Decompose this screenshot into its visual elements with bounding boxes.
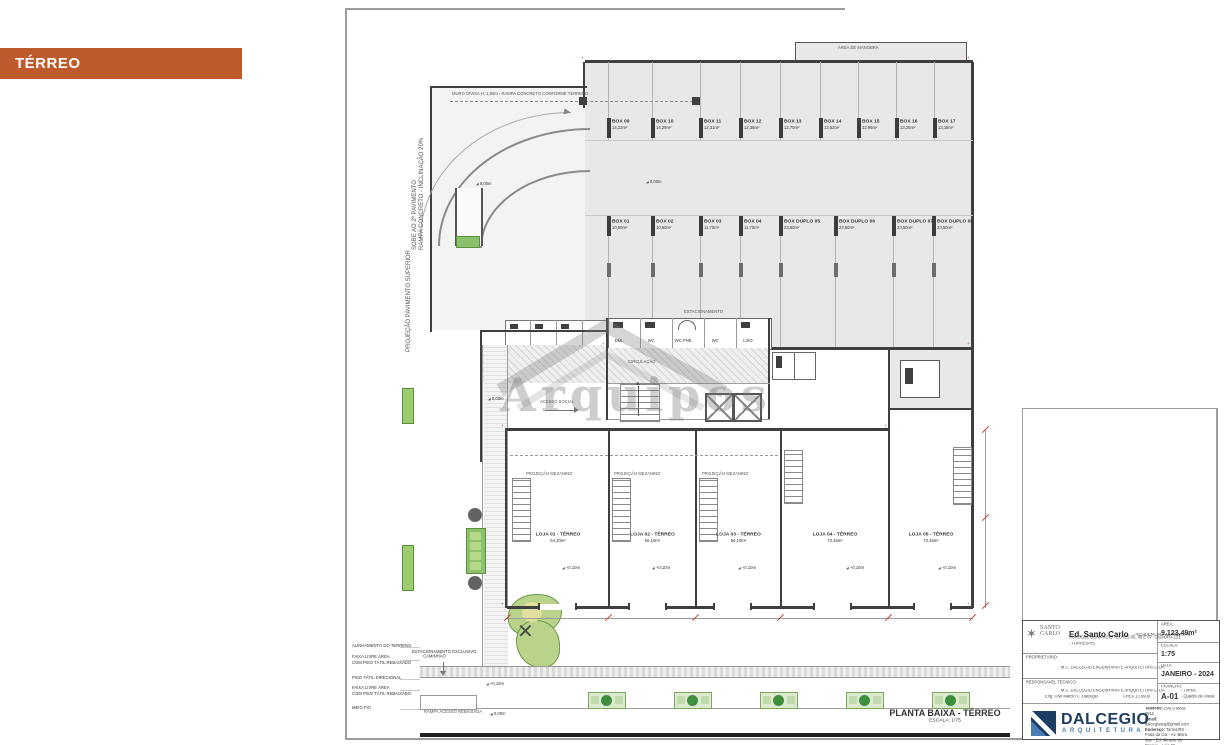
- watermark-text: Arquipos: [500, 368, 772, 422]
- street-planter: [674, 692, 712, 709]
- s7: 10,50m²: [656, 226, 671, 231]
- mezz-dashed: [510, 455, 778, 456]
- shape: [591, 696, 599, 704]
- ramp-rebaixada: [420, 695, 477, 710]
- escala-value: 1:75: [1161, 651, 1175, 658]
- box-stall: BOX DUPLO 0723,50m²: [893, 216, 934, 347]
- blab: BOX 1014,29m²: [656, 119, 678, 133]
- b: BOX DUPLO 08: [937, 219, 973, 225]
- s7: 12,70m²: [784, 126, 799, 131]
- jamb: [750, 603, 752, 610]
- blab: BOX DUPLO 0523,50m²: [784, 219, 828, 233]
- fixture: [905, 368, 913, 384]
- b: Telefone:: [1145, 707, 1163, 711]
- arrow-head: [440, 671, 446, 676]
- loja-stair: [784, 450, 803, 504]
- prancha-label: PRANCHA:: [1161, 685, 1182, 689]
- a: [470, 532, 481, 540]
- tblab: Telefone: (54) 9 9999-9912 Email: dalceg…: [1145, 707, 1194, 745]
- jamb: [575, 603, 577, 610]
- shape: [935, 696, 943, 704]
- legend-item: MEIO FIO: [352, 706, 371, 711]
- s7: 73,45m²: [799, 539, 872, 544]
- street-planter: [760, 692, 798, 709]
- street-planter: [588, 692, 626, 709]
- legend-item: COM PISO TÁTIL REBAIXADO: [352, 661, 411, 666]
- b: Email:: [1145, 718, 1157, 722]
- owner-label: PROPRIETÁRIO:: [1026, 656, 1058, 660]
- jamb: [538, 603, 540, 610]
- shape: ✶: [1026, 626, 1037, 641]
- shape: [959, 696, 967, 704]
- s7: 23,50m²: [937, 226, 968, 231]
- b: BOX 01: [612, 219, 630, 225]
- a: [1023, 703, 1219, 704]
- dim-line: [507, 618, 973, 619]
- aisle-line: [585, 140, 973, 141]
- blab: BOX 0110,50m²: [612, 219, 634, 233]
- small-room: [794, 352, 816, 380]
- arrow-head: [563, 108, 571, 115]
- jamb: [628, 603, 630, 610]
- shape: CAMINHÃO: [412, 655, 457, 660]
- drawing-sheet: ÁREA DE MANOBRA MURO DIVISA H: 1,80m - R…: [0, 0, 1224, 745]
- s7: 10,50m²: [612, 226, 627, 231]
- street-planter: [846, 692, 884, 709]
- ramp-planter: [456, 236, 480, 248]
- legend-leader: [400, 679, 420, 680]
- wall: [888, 410, 890, 606]
- wall: [608, 430, 610, 606]
- legend-leader: [400, 690, 420, 691]
- shape: +0,10m: [566, 566, 580, 570]
- frame-left: [345, 8, 347, 739]
- blab: BOX 0411,70m²: [744, 219, 766, 233]
- loja-label: LOJA 01 - TÉRREO54,30m²: [509, 532, 607, 546]
- a: [1157, 662, 1219, 663]
- door-gap: [715, 604, 750, 610]
- shape: [677, 696, 685, 704]
- flagtri: ◢: [738, 566, 741, 570]
- jamb: [813, 603, 815, 610]
- a: [470, 542, 481, 550]
- level-flag: ◢ 0,00m: [490, 712, 506, 717]
- resp-engineer: Eng. Civil Márcio C. Dalcegio: [1045, 695, 1098, 699]
- s7: 23,50m²: [839, 226, 870, 231]
- b: BOX 14: [824, 119, 842, 125]
- wall: [430, 86, 587, 88]
- a: +: [967, 602, 969, 607]
- shape: [601, 695, 612, 706]
- screenshot: TÉRREO ÁREA DE MANOBRA MURO DIVISA H: 1,…: [0, 0, 1224, 745]
- b: LOJA 02 - TÉRREO: [618, 532, 686, 538]
- b: BOX 16: [900, 119, 918, 125]
- b: LOJA 01 - TÉRREO: [518, 532, 598, 538]
- flagtri: ◢: [938, 566, 941, 570]
- shape: [687, 695, 698, 706]
- tree: [468, 508, 482, 522]
- escala-label: ESCALA:: [1161, 644, 1178, 648]
- b: BOX DUPLO 05: [784, 219, 820, 225]
- prancha-value: A-01: [1161, 692, 1178, 701]
- box-stall: BOX 1014,29m²: [652, 62, 701, 140]
- shape: [763, 696, 771, 704]
- jamb: [713, 603, 715, 610]
- box-stall: BOX 0914,22m²: [608, 62, 653, 140]
- b: BOX 10: [656, 119, 674, 125]
- blab: BOX 1613,25m²: [900, 119, 922, 133]
- b: BOX 12: [744, 119, 762, 125]
- box-stall: BOX DUPLO 0623,50m²: [835, 216, 894, 347]
- box-stall: BOX 1212,36m²: [740, 62, 781, 140]
- jamb: [665, 603, 667, 610]
- legend-leader: [400, 709, 420, 710]
- legend-item: FAIXA LIVRE ÁREA: [352, 686, 390, 691]
- jamb: [913, 603, 915, 610]
- fixture: [776, 356, 782, 368]
- street-curb: [420, 733, 1010, 737]
- legend-item: PISO TÁTIL DIRECIONAL: [352, 676, 401, 681]
- caption-scale: ESCALA: 1/75: [890, 718, 1000, 724]
- shape: 0,00m: [480, 182, 492, 186]
- b: BOX 13: [784, 119, 802, 125]
- flagtri: ◢: [652, 566, 655, 570]
- shape: SOBE AO 2º PAVIMENTO: [412, 138, 419, 250]
- shape: +0,10m: [742, 566, 756, 570]
- mezanino-label: PROJEÇÃO MEZANINO: [526, 472, 572, 477]
- box-stall: BOX 1713,18m²: [934, 62, 974, 140]
- loja-label: LOJA 02 - TÉRREO56,10m²: [611, 532, 694, 546]
- s7: 12,96m²: [862, 126, 877, 131]
- shape: [849, 696, 857, 704]
- owner-value: M.C. DALCEGIO ENGENHARIA E ARQUITETURA L…: [1061, 666, 1137, 670]
- door-gap: [815, 604, 850, 610]
- b: LOJA 04 - TÉRREO: [792, 532, 877, 538]
- flagtri: ◢: [846, 566, 849, 570]
- wall: [505, 428, 890, 431]
- a: +: [501, 602, 503, 607]
- jamb: [950, 603, 952, 610]
- shape: [773, 695, 784, 706]
- mezanino-label: PROJEÇÃO MEZANINO: [614, 472, 660, 477]
- b: BOX 17: [938, 119, 956, 125]
- blab: BOX 1312,70m²: [784, 119, 806, 133]
- blab: BOX DUPLO 0623,50m²: [839, 219, 883, 233]
- flagtri: ◢: [562, 566, 565, 570]
- ramp-vertical-label: SOBE AO 2º PAVIMENTORAMPA CONCRETO - INC…: [412, 138, 426, 250]
- santo-carlo-wordmark: SANTOCARLO: [1040, 625, 1060, 638]
- b: BOX DUPLO 07: [897, 219, 933, 225]
- s7: 11,70m²: [744, 226, 759, 231]
- blab: BOX 1212,36m²: [744, 119, 766, 133]
- b: LOJA 05 - TÉRREO: [898, 532, 964, 538]
- shape: dalcegioarq@gmail.com: [1145, 723, 1189, 727]
- s7: 13,25m²: [900, 126, 915, 131]
- level-flag: ◢ +0,10m: [938, 566, 956, 571]
- s7: 11,70m²: [704, 226, 719, 231]
- a: [1023, 653, 1157, 654]
- room-label: LIXO: [736, 339, 760, 344]
- shape: 0,00m: [494, 712, 506, 716]
- santo-carlo-mark: ✶: [1026, 625, 1037, 643]
- shape: [859, 695, 870, 706]
- shape: RAMPA CONCRETO - INCLINAÇÃO 20%: [419, 138, 426, 250]
- b: BOX DUPLO 06: [839, 219, 875, 225]
- blab: BOX DUPLO 0823,50m²: [937, 219, 981, 233]
- loja-label: LOJA 03 - TÉRREO56,10m²: [698, 532, 779, 546]
- box-stall: BOX 1613,25m²: [896, 62, 935, 140]
- b: BOX 15: [862, 119, 880, 125]
- blab: BOX 1713,18m²: [938, 119, 960, 133]
- area-label: ÁREA:: [1161, 623, 1173, 627]
- street-planter: [932, 692, 970, 709]
- s7: 12,36m²: [744, 126, 759, 131]
- b: BOX 03: [704, 219, 722, 225]
- wall: [505, 430, 507, 608]
- level-flag: ◢ 0,00m: [646, 180, 662, 185]
- b: Endereço:: [1145, 728, 1165, 732]
- b: LOJA 03 - TÉRREO: [705, 532, 771, 538]
- level-flag: ◢ +0,10m: [562, 566, 580, 571]
- resp-crea: CREA 13.9500: [1123, 695, 1150, 699]
- door-gap: [630, 604, 665, 610]
- door-gap: [540, 604, 575, 610]
- a: +: [884, 424, 886, 429]
- b: BOX 04: [744, 219, 762, 225]
- box-stall: BOX 1413,52m²: [820, 62, 859, 140]
- s7: 23,50m²: [897, 226, 928, 231]
- brand-sub: ARQUITETURA: [1062, 728, 1144, 734]
- flagtri: ◢: [646, 180, 649, 184]
- s7: 73,45m²: [903, 539, 959, 544]
- truck-parking-label: ESTACIONAMENTO EXCLUSIVOCAMINHÃO: [412, 650, 457, 660]
- wall: [888, 350, 890, 410]
- legend-item: COM PISO TÁTIL REBAIXADO: [352, 692, 411, 697]
- wall: [888, 408, 973, 410]
- prancha-note1: - Térreo: [1181, 689, 1195, 693]
- wall: [482, 345, 483, 668]
- resp-label: RESPONSÁVEL TÉCNICO:: [1026, 681, 1077, 685]
- level-flag: ◢ +0,10m: [486, 682, 504, 687]
- shape: [615, 696, 623, 704]
- tree-symbol: ✕: [517, 622, 534, 642]
- blab: BOX 1413,52m²: [824, 119, 846, 133]
- a: +: [967, 342, 969, 347]
- level-flag: ◢ +0,10m: [738, 566, 756, 571]
- a: +: [581, 56, 583, 61]
- a: +: [967, 56, 969, 61]
- legend-leader: [400, 647, 420, 648]
- box-stall: BOX 1512,96m²: [858, 62, 897, 140]
- prancha-note2: - Quadro de Áreas: [1181, 695, 1215, 699]
- dim-line: [985, 430, 986, 608]
- muro-divisa-label: MURO DIVISA H: 1,80m - RAMPA CONCRETO CO…: [452, 92, 588, 97]
- plan-caption: PLANTA BAIXA - TÉRREO ESCALA: 1/75: [878, 708, 1012, 725]
- project-address2: - TORRES/RS: [1069, 642, 1095, 646]
- b: BOX 02: [656, 219, 674, 225]
- sidewalk-strip: [420, 666, 1010, 678]
- s7: 23,50m²: [784, 226, 815, 231]
- s7: 12,31m²: [704, 126, 719, 131]
- box-stall: BOX DUPLO 0523,50m²: [780, 216, 836, 347]
- area-value: 9.123,49m²: [1161, 630, 1197, 637]
- level-flag: ◢ +0,10m: [846, 566, 864, 571]
- s7: 13,52m²: [824, 126, 839, 131]
- rampa-rebaixada-label: RAMPA ACESSO REBAIXADA: [424, 710, 482, 715]
- blab: BOX 1112,31m²: [704, 119, 726, 133]
- a: [1023, 678, 1157, 679]
- area-manobra-label: ÁREA DE MANOBRA: [838, 46, 879, 51]
- title-block: ✶ SANTOCARLO Ed. Santo Carlo - RESIDENCI…: [1022, 620, 1220, 740]
- shape: 0,00m: [650, 180, 662, 184]
- flagtri: ◢: [486, 682, 489, 686]
- s7: 13,18m²: [938, 126, 953, 131]
- box-stall: BOX 1312,70m²: [780, 62, 821, 140]
- loja-label: LOJA 04 - TÉRREO73,45m²: [783, 532, 887, 546]
- resp-company: M.C. DALCEGIO ENGENHARIA E ARQUITETURA L…: [1061, 689, 1137, 693]
- box-stall: BOX DUPLO 0823,50m²: [933, 216, 974, 347]
- dalcegio-logo: [1031, 711, 1056, 736]
- blab: BOX 0210,50m²: [656, 219, 678, 233]
- green-strip: [402, 388, 414, 424]
- shape: +0,10m: [850, 566, 864, 570]
- tree: [468, 576, 482, 590]
- projecao-vertical-label: PROJEÇÃO PAVIMENTO SUPERIOR: [406, 250, 413, 352]
- flagtri: ◢: [490, 712, 493, 716]
- loja-label: LOJA 05 - TÉRREO73,45m²: [891, 532, 971, 546]
- shape: [945, 695, 956, 706]
- frame-top: [345, 8, 845, 10]
- s7: 56,10m²: [623, 539, 681, 544]
- guide-node: [579, 97, 587, 105]
- s7: 14,22m²: [612, 126, 627, 131]
- wall: [780, 430, 782, 606]
- tick: [969, 614, 976, 621]
- wall: [480, 330, 482, 462]
- a: [470, 562, 481, 570]
- contact-block: Telefone: (54) 9 9999-9912 Email: dalceg…: [1145, 707, 1217, 745]
- flagtri: ◢: [476, 182, 479, 186]
- shape: +0,10m: [942, 566, 956, 570]
- level-flag: ◢ +0,10m: [652, 566, 670, 571]
- blab: BOX 1512,96m²: [862, 119, 884, 133]
- shape: +0,10m: [656, 566, 670, 570]
- blab: BOX 0311,70m²: [704, 219, 726, 233]
- data-label: DATA:: [1161, 664, 1172, 668]
- wall: [695, 430, 697, 606]
- shape: [787, 696, 795, 704]
- level-flag: ◢ 0,00m: [476, 182, 492, 187]
- green-strip: [402, 545, 414, 591]
- data-value: JANEIRO - 2024: [1161, 671, 1214, 678]
- shape: +0,10m: [490, 682, 504, 686]
- s7: 54,30m²: [524, 539, 593, 544]
- mezanino-label: PROJEÇÃO MEZANINO: [702, 472, 748, 477]
- box-stall: BOX 1112,31m²: [700, 62, 741, 140]
- jamb: [850, 603, 852, 610]
- fixture: [741, 322, 750, 328]
- brand-name: DALCEGIO: [1061, 711, 1149, 729]
- walk-planter: [466, 528, 486, 574]
- b: BOX 11: [704, 119, 722, 125]
- legend-leader: [400, 660, 420, 661]
- a: [1157, 642, 1219, 643]
- titlecol-top: [1022, 408, 1217, 409]
- a: [470, 552, 481, 560]
- shape: CARLO: [1040, 631, 1060, 637]
- s7: 56,10m²: [710, 539, 767, 544]
- a: [1157, 683, 1219, 684]
- b: BOX 09: [612, 119, 630, 125]
- caption-title: PLANTA BAIXA - TÉRREO: [878, 708, 1012, 718]
- s7: 14,29m²: [656, 126, 671, 131]
- loja-stair: [953, 447, 972, 505]
- legend-item: FAIXA LIVRE ÁREA: [352, 655, 390, 660]
- shape: [873, 696, 881, 704]
- blab: BOX 0914,22m²: [612, 119, 634, 133]
- shape: [701, 696, 709, 704]
- door-gap: [915, 604, 950, 610]
